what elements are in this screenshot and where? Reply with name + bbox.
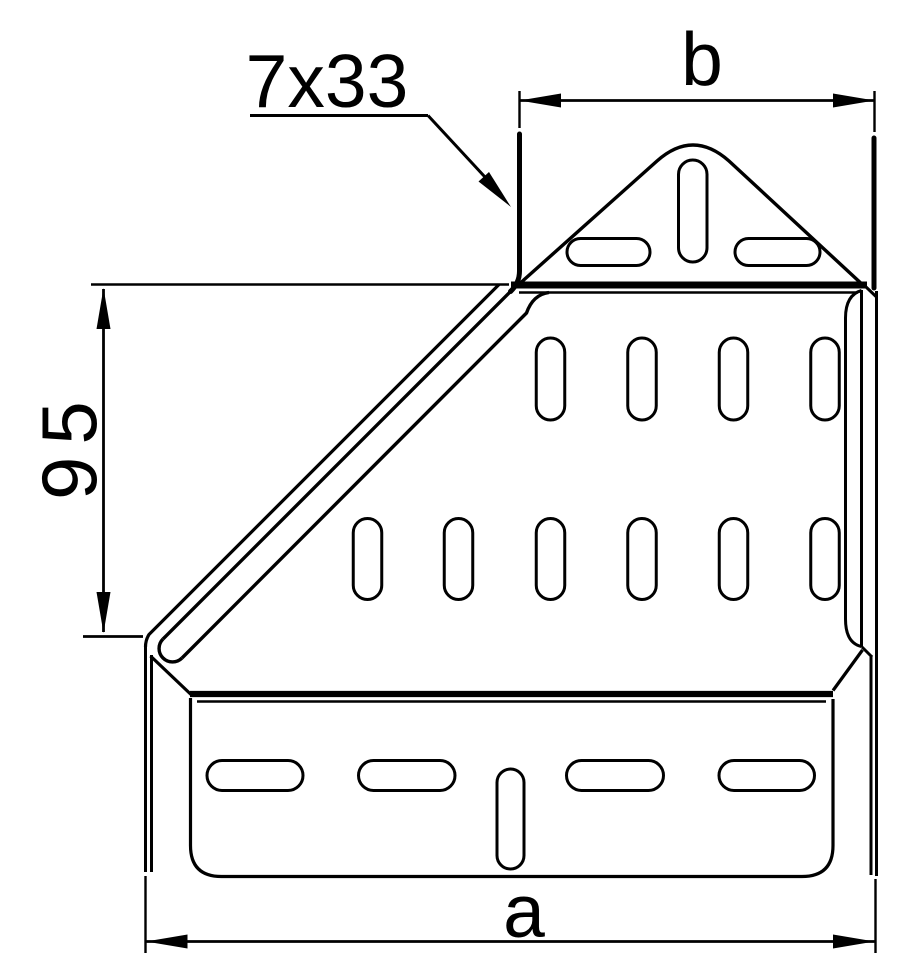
lower-tray-end <box>146 646 872 877</box>
slot-hole-horizontal <box>719 761 815 791</box>
slot-hole-vertical <box>353 519 382 600</box>
slot-hole-horizontal <box>567 761 664 791</box>
technical-drawing-canvas: b 7x33 95 a <box>0 0 912 973</box>
slot-hole-vertical <box>536 519 565 600</box>
slot-hole-horizontal <box>359 761 456 791</box>
slot-hole-vertical <box>444 519 473 600</box>
upper-left-wall-edge <box>511 134 520 292</box>
arrow-leader-icon <box>479 172 512 207</box>
dimension-95-label: 95 <box>25 389 113 500</box>
slot-hole-vertical <box>628 338 657 420</box>
slot-hole-vertical <box>811 338 840 420</box>
slot-hole-vertical <box>628 519 657 600</box>
reducer-drawing: b 7x33 95 a <box>0 0 912 973</box>
slot-hole-horizontal <box>735 239 820 266</box>
fold-line-middle <box>163 291 511 639</box>
slot-hole-vertical <box>536 338 565 420</box>
right-rail-inner-fold <box>846 291 862 647</box>
slot-hole-vertical <box>497 769 524 869</box>
dimension-b: b <box>520 17 875 132</box>
slot-hole-vertical <box>679 160 708 262</box>
arrow-down-icon <box>97 592 111 633</box>
fold-line-inner <box>182 293 549 659</box>
arrow-right-icon <box>833 94 875 108</box>
arrow-up-icon <box>97 288 111 329</box>
arrow-left-icon <box>520 94 562 108</box>
fold-end-cap <box>159 639 182 662</box>
middle-web <box>146 285 877 877</box>
dimension-a: a <box>146 869 876 953</box>
slot-hole-horizontal <box>207 761 303 791</box>
slot-hole-vertical <box>719 519 748 600</box>
lower-right-corner-diagonal <box>833 650 863 691</box>
upper-tray-end <box>511 134 875 293</box>
slot-callout: 7x33 <box>246 39 511 207</box>
slot-hole-horizontal <box>567 239 650 266</box>
slot-hole-vertical <box>811 519 840 600</box>
slot-hole-vertical <box>719 338 748 420</box>
slot-callout-label: 7x33 <box>246 39 409 123</box>
arrow-left-icon <box>146 935 188 949</box>
arrow-right-icon <box>833 935 875 949</box>
dimension-95: 95 <box>25 285 509 637</box>
dimension-b-label: b <box>681 17 723 101</box>
bottom-plate-outline <box>191 698 834 877</box>
